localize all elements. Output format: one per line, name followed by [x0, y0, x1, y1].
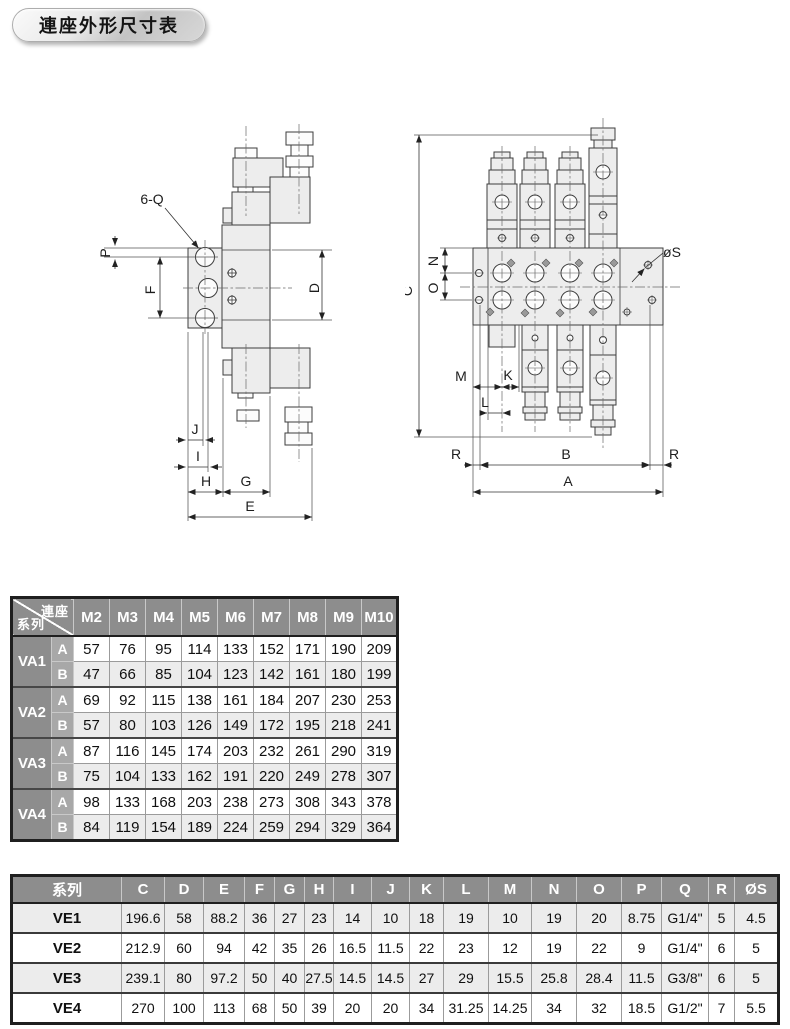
table-row: VE1196.65888.2362723141018191019208.75G1… — [12, 903, 779, 933]
ve-dimension-table: 系列 CDEFGHIJKLMNOPQRØS VE1196.65888.23627… — [10, 874, 780, 1025]
table-cell: 23 — [305, 903, 334, 933]
column-header-p: P — [622, 876, 662, 904]
column-header-m10: M10 — [362, 598, 398, 637]
table-cell: 238 — [218, 789, 254, 815]
ve-table-header-row: 系列 CDEFGHIJKLMNOPQRØS — [12, 876, 779, 904]
column-header-m5: M5 — [182, 598, 218, 637]
table-cell: 113 — [204, 993, 245, 1024]
sub-row-label: A — [52, 789, 74, 815]
dim-label-c: C — [405, 286, 415, 296]
table-cell: 239.1 — [122, 963, 165, 993]
column-header-j: J — [372, 876, 410, 904]
table-cell: 149 — [218, 713, 254, 739]
table-cell: 28.4 — [577, 963, 622, 993]
table-cell: 75 — [74, 764, 110, 790]
table-cell: 103 — [146, 713, 182, 739]
table-cell: 97.2 — [204, 963, 245, 993]
table-cell: 19 — [532, 903, 577, 933]
table-cell: 207 — [290, 687, 326, 713]
table-cell: 14.25 — [489, 993, 532, 1024]
table-cell: 142 — [254, 662, 290, 688]
va-table-header-row: 連座 系列 M2M3M4M5M6M7M8M9M10 — [12, 598, 398, 637]
dim-label-r-right: R — [669, 446, 679, 462]
table-cell: 119 — [110, 815, 146, 841]
dim-label-k: K — [503, 367, 513, 383]
table-cell: 115 — [146, 687, 182, 713]
front-view-drawing: C N O øS M K L R B R A — [405, 108, 717, 508]
side-view-drawing: 6-Q P F D J I H G E — [95, 108, 365, 533]
table-cell: 22 — [577, 933, 622, 963]
dim-label-b: B — [561, 446, 570, 462]
table-cell: 36 — [245, 903, 275, 933]
table-cell: 145 — [146, 738, 182, 764]
table-cell: 5 — [735, 963, 779, 993]
sub-row-label: A — [52, 636, 74, 662]
table-cell: 6 — [709, 933, 735, 963]
dim-label-j: J — [192, 421, 199, 437]
column-header-l: L — [444, 876, 489, 904]
table-cell: 232 — [254, 738, 290, 764]
table-cell: 343 — [326, 789, 362, 815]
table-cell: G1/4" — [662, 903, 709, 933]
series-label-va3: VA3 — [12, 738, 52, 789]
table-cell: 184 — [254, 687, 290, 713]
table-cell: 278 — [326, 764, 362, 790]
table-row: VA2A6992115138161184207230253 — [12, 687, 398, 713]
column-header-o: O — [577, 876, 622, 904]
table-cell: 273 — [254, 789, 290, 815]
dim-label-l: L — [481, 394, 489, 410]
sub-row-label: A — [52, 687, 74, 713]
table-cell: 27 — [410, 963, 444, 993]
table-cell: 35 — [275, 933, 305, 963]
table-cell: 230 — [326, 687, 362, 713]
table-cell: 60 — [165, 933, 204, 963]
series-label-va1: VA1 — [12, 636, 52, 687]
series-label-ve2: VE2 — [12, 933, 122, 963]
table-row: VA4A98133168203238273308343378 — [12, 789, 398, 815]
table-cell: 29 — [444, 963, 489, 993]
table-cell: 15.5 — [489, 963, 532, 993]
table-cell: 307 — [362, 764, 398, 790]
table-row: VE3239.18097.2504027.514.514.5272915.525… — [12, 963, 779, 993]
table-cell: 133 — [110, 789, 146, 815]
table-cell: 220 — [254, 764, 290, 790]
table-cell: 189 — [182, 815, 218, 841]
column-header-m6: M6 — [218, 598, 254, 637]
column-header-c: C — [122, 876, 165, 904]
table-cell: 50 — [245, 963, 275, 993]
series-label-ve3: VE3 — [12, 963, 122, 993]
table-cell: G1/4" — [662, 933, 709, 963]
table-cell: 87 — [74, 738, 110, 764]
table-cell: 14.5 — [334, 963, 372, 993]
table-cell: 42 — [245, 933, 275, 963]
table-cell: 329 — [326, 815, 362, 841]
column-header-i: I — [334, 876, 372, 904]
dim-label-r-left: R — [451, 446, 461, 462]
table-cell: 80 — [110, 713, 146, 739]
table-cell: 378 — [362, 789, 398, 815]
table-cell: 98 — [74, 789, 110, 815]
table-cell: 9 — [622, 933, 662, 963]
table-cell: 16.5 — [334, 933, 372, 963]
series-label-va4: VA4 — [12, 789, 52, 841]
table-cell: 20 — [577, 903, 622, 933]
corner-label-series: 系列 — [17, 614, 45, 633]
series-label-va2: VA2 — [12, 687, 52, 738]
table-cell: 241 — [362, 713, 398, 739]
corner-header-cell: 連座 系列 — [12, 598, 74, 637]
dim-label-6q: 6-Q — [140, 191, 163, 207]
dim-label-g: G — [241, 473, 252, 489]
table-cell: 133 — [146, 764, 182, 790]
table-cell: 138 — [182, 687, 218, 713]
table-cell: 364 — [362, 815, 398, 841]
table-cell: 5 — [735, 933, 779, 963]
table-cell: 308 — [290, 789, 326, 815]
table-cell: 58 — [165, 903, 204, 933]
table-cell: 161 — [218, 687, 254, 713]
dim-label-f: F — [142, 286, 158, 295]
table-cell: 26 — [305, 933, 334, 963]
table-cell: 209 — [362, 636, 398, 662]
series-label-ve1: VE1 — [12, 903, 122, 933]
dim-label-d: D — [306, 283, 322, 293]
table-cell: 4.5 — [735, 903, 779, 933]
dim-label-h: H — [201, 473, 211, 489]
table-cell: 270 — [122, 993, 165, 1024]
dim-label-n: N — [425, 256, 441, 266]
table-cell: 199 — [362, 662, 398, 688]
valve-body-outline — [188, 158, 310, 393]
table-cell: 10 — [489, 903, 532, 933]
table-cell: 14.5 — [372, 963, 410, 993]
va-table-body: VA1A577695114133152171190209B47668510412… — [12, 636, 398, 841]
table-cell: 212.9 — [122, 933, 165, 963]
table-cell: 66 — [110, 662, 146, 688]
table-cell: G3/8" — [662, 963, 709, 993]
table-cell: 249 — [290, 764, 326, 790]
table-cell: 152 — [254, 636, 290, 662]
table-cell: 40 — [275, 963, 305, 993]
table-cell: 203 — [182, 789, 218, 815]
table-row: VA3A87116145174203232261290319 — [12, 738, 398, 764]
column-header-e: E — [204, 876, 245, 904]
table-cell: 84 — [74, 815, 110, 841]
column-header-k: K — [410, 876, 444, 904]
table-cell: 290 — [326, 738, 362, 764]
table-cell: 116 — [110, 738, 146, 764]
table-cell: 14 — [334, 903, 372, 933]
table-cell: 104 — [182, 662, 218, 688]
table-cell: 57 — [74, 636, 110, 662]
dim-label-e: E — [245, 498, 254, 514]
table-cell: 253 — [362, 687, 398, 713]
table-row: B5780103126149172195218241 — [12, 713, 398, 739]
table-row: VE2212.9609442352616.511.522231219229G1/… — [12, 933, 779, 963]
table-cell: 5.5 — [735, 993, 779, 1024]
table-cell: 126 — [182, 713, 218, 739]
table-cell: 50 — [275, 993, 305, 1024]
table-cell: 203 — [218, 738, 254, 764]
table-row: B75104133162191220249278307 — [12, 764, 398, 790]
table-cell: 88.2 — [204, 903, 245, 933]
sub-row-label: B — [52, 815, 74, 841]
column-header-m2: M2 — [74, 598, 110, 637]
dim-label-o: O — [425, 282, 441, 293]
table-cell: 6 — [709, 963, 735, 993]
table-cell: 19 — [444, 903, 489, 933]
table-cell: 23 — [444, 933, 489, 963]
table-cell: 171 — [290, 636, 326, 662]
column-header-h: H — [305, 876, 334, 904]
series-column-header: 系列 — [12, 876, 122, 904]
dim-label-i: I — [196, 448, 200, 464]
table-cell: 20 — [334, 993, 372, 1024]
table-cell: 20 — [372, 993, 410, 1024]
dim-label-p: P — [97, 248, 113, 257]
table-cell: 7 — [709, 993, 735, 1024]
table-cell: 172 — [254, 713, 290, 739]
table-cell: 85 — [146, 662, 182, 688]
column-header-m7: M7 — [254, 598, 290, 637]
column-header-m4: M4 — [146, 598, 182, 637]
table-cell: 154 — [146, 815, 182, 841]
column-header-f: F — [245, 876, 275, 904]
corner-label-manifold: 連座 — [41, 601, 69, 620]
catalog-page: 連座外形尺寸表 — [0, 0, 790, 1029]
table-cell: 161 — [290, 662, 326, 688]
table-cell: 11.5 — [372, 933, 410, 963]
column-header-n: N — [532, 876, 577, 904]
table-cell: 34 — [410, 993, 444, 1024]
table-cell: 190 — [326, 636, 362, 662]
ve-table-body: VE1196.65888.2362723141018191019208.75G1… — [12, 903, 779, 1024]
page-title: 連座外形尺寸表 — [12, 8, 206, 42]
table-cell: 11.5 — [622, 963, 662, 993]
table-cell: 261 — [290, 738, 326, 764]
table-cell: 5 — [709, 903, 735, 933]
table-cell: 10 — [372, 903, 410, 933]
table-cell: 123 — [218, 662, 254, 688]
table-cell: G1/2" — [662, 993, 709, 1024]
table-cell: 294 — [290, 815, 326, 841]
table-cell: 27.5 — [305, 963, 334, 993]
va-dimension-table: 連座 系列 M2M3M4M5M6M7M8M9M10 VA1A5776951141… — [10, 596, 399, 842]
table-cell: 80 — [165, 963, 204, 993]
table-cell: 69 — [74, 687, 110, 713]
table-cell: 32 — [577, 993, 622, 1024]
table-cell: 22 — [410, 933, 444, 963]
table-cell: 100 — [165, 993, 204, 1024]
dim-label-m: M — [455, 368, 467, 384]
table-cell: 8.75 — [622, 903, 662, 933]
table-cell: 19 — [532, 933, 577, 963]
column-header-g: G — [275, 876, 305, 904]
table-cell: 104 — [110, 764, 146, 790]
table-cell: 94 — [204, 933, 245, 963]
table-cell: 168 — [146, 789, 182, 815]
dim-label-a: A — [563, 473, 573, 489]
table-cell: 47 — [74, 662, 110, 688]
table-cell: 319 — [362, 738, 398, 764]
table-cell: 95 — [146, 636, 182, 662]
table-row: VE427010011368503920203431.2514.25343218… — [12, 993, 779, 1024]
sub-row-label: B — [52, 662, 74, 688]
table-row: B84119154189224259294329364 — [12, 815, 398, 841]
column-header-r: R — [709, 876, 735, 904]
table-cell: 196.6 — [122, 903, 165, 933]
table-cell: 18 — [410, 903, 444, 933]
table-cell: 133 — [218, 636, 254, 662]
dim-label-os: øS — [663, 244, 681, 260]
sub-row-label: B — [52, 713, 74, 739]
table-row: VA1A577695114133152171190209 — [12, 636, 398, 662]
table-cell: 180 — [326, 662, 362, 688]
table-cell: 31.25 — [444, 993, 489, 1024]
series-label-ve4: VE4 — [12, 993, 122, 1024]
table-cell: 57 — [74, 713, 110, 739]
table-cell: 25.8 — [532, 963, 577, 993]
table-cell: 174 — [182, 738, 218, 764]
table-cell: 114 — [182, 636, 218, 662]
table-cell: 34 — [532, 993, 577, 1024]
table-cell: 27 — [275, 903, 305, 933]
column-header-m: M — [489, 876, 532, 904]
table-cell: 191 — [218, 764, 254, 790]
table-cell: 76 — [110, 636, 146, 662]
table-cell: 195 — [290, 713, 326, 739]
column-header-q: Q — [662, 876, 709, 904]
column-header-d: D — [165, 876, 204, 904]
sub-row-label: A — [52, 738, 74, 764]
table-cell: 224 — [218, 815, 254, 841]
table-cell: 259 — [254, 815, 290, 841]
table-cell: 18.5 — [622, 993, 662, 1024]
table-cell: 39 — [305, 993, 334, 1024]
table-row: B476685104123142161180199 — [12, 662, 398, 688]
column-header-m3: M3 — [110, 598, 146, 637]
column-header-m9: M9 — [326, 598, 362, 637]
column-header-m8: M8 — [290, 598, 326, 637]
table-cell: 68 — [245, 993, 275, 1024]
sub-row-label: B — [52, 764, 74, 790]
table-cell: 12 — [489, 933, 532, 963]
column-header-øs: ØS — [735, 876, 779, 904]
table-cell: 162 — [182, 764, 218, 790]
table-cell: 92 — [110, 687, 146, 713]
table-cell: 218 — [326, 713, 362, 739]
